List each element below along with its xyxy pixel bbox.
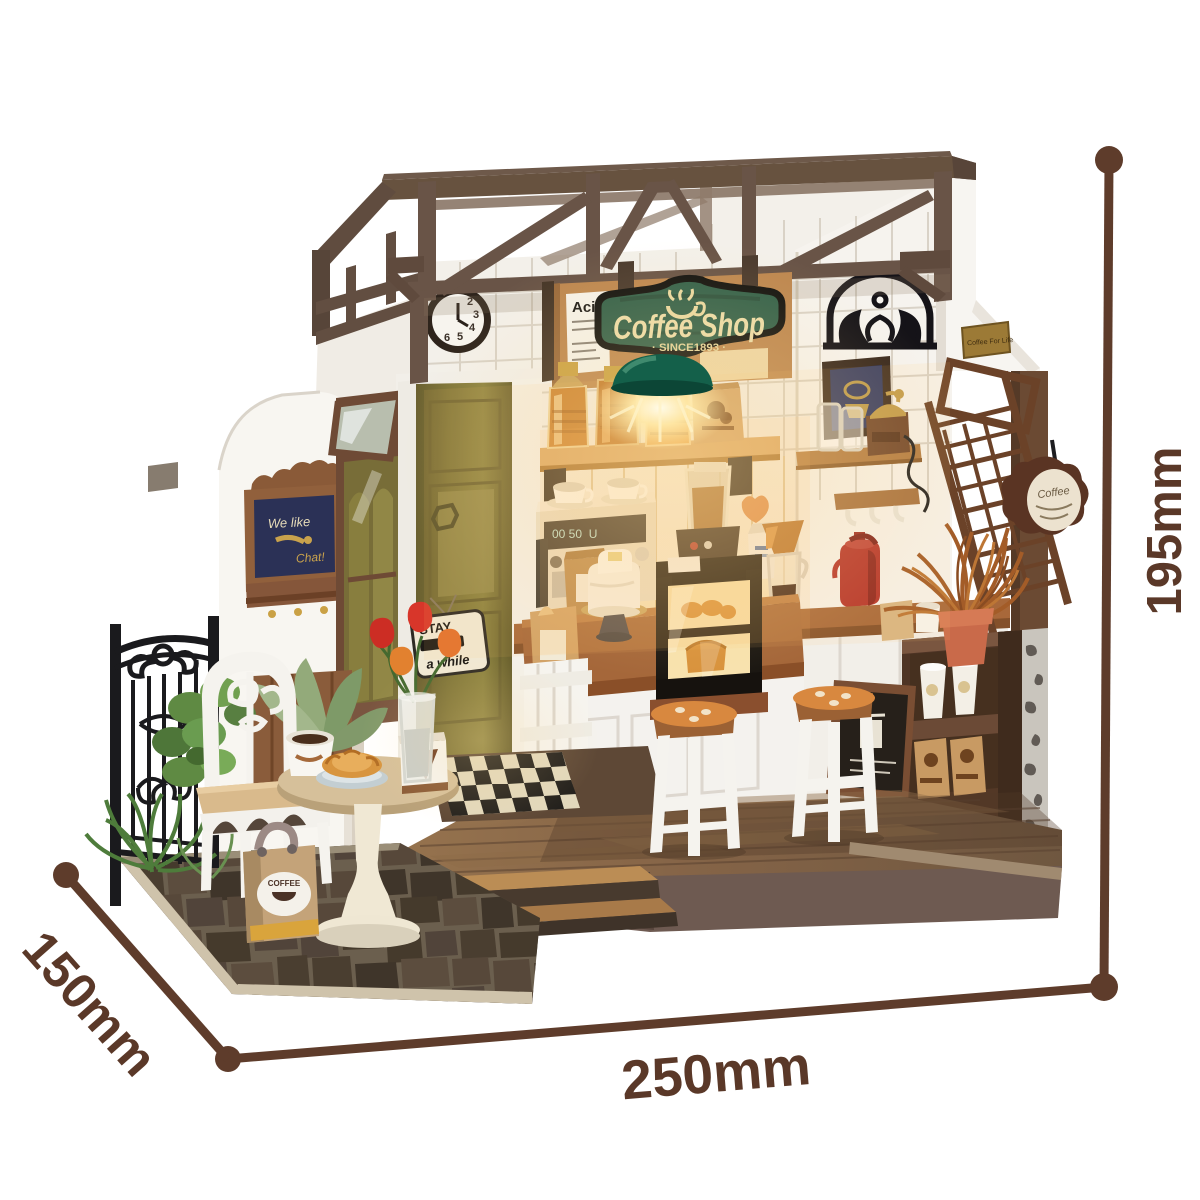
svg-text:We like: We like (268, 514, 311, 531)
svg-text:Chat!: Chat! (296, 550, 326, 566)
svg-text:195mm: 195mm (1138, 447, 1192, 616)
svg-text:COFFEE: COFFEE (268, 879, 301, 888)
